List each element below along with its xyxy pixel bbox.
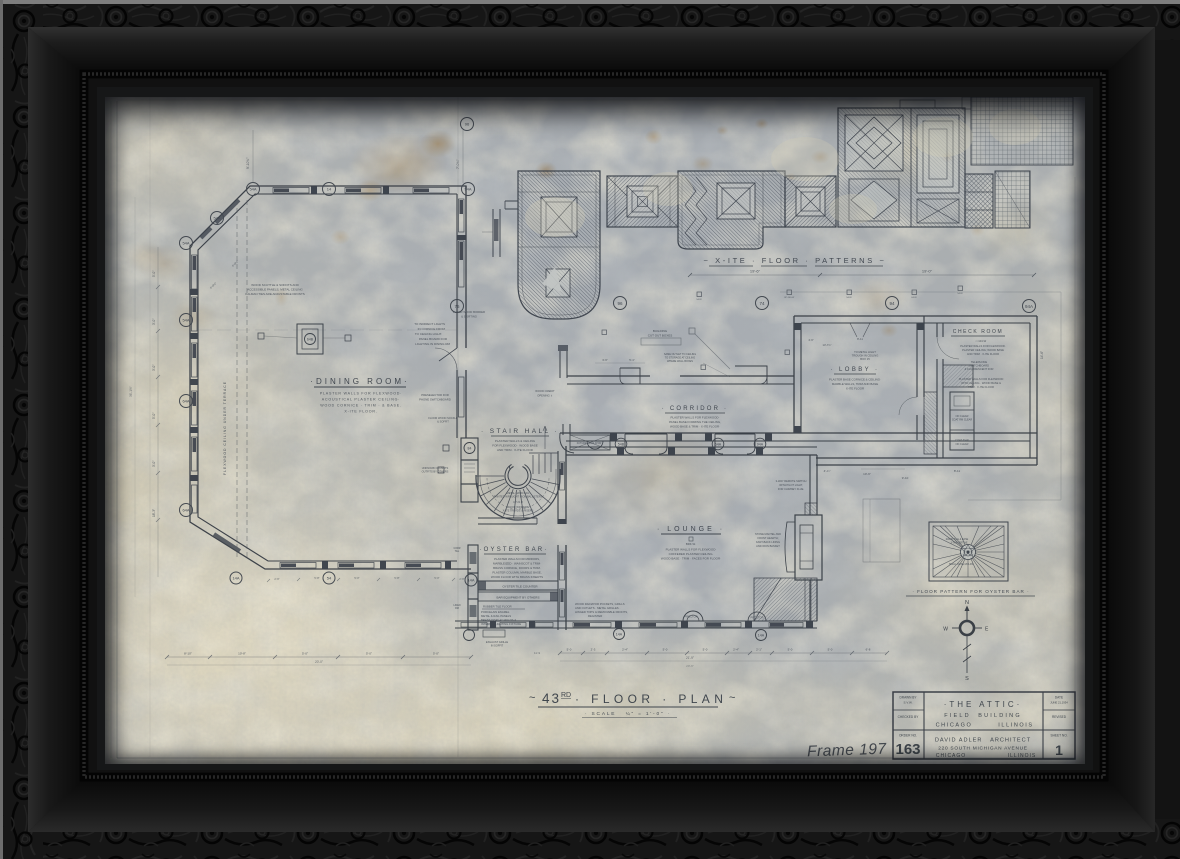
svg-text:· LOBBY ·: · LOBBY · xyxy=(831,367,880,373)
svg-text:5'-0: 5'-0 xyxy=(703,648,708,652)
svg-text:19'-0": 19'-0" xyxy=(922,269,933,274)
svg-text:14A: 14A xyxy=(232,576,239,581)
svg-text:· FLOOR · PLAN: · FLOOR · PLAN xyxy=(575,692,727,706)
svg-text:· STAIR HALL ·: · STAIR HALL · xyxy=(481,428,559,435)
svg-text:X-ITE FLOOR.: X-ITE FLOOR. xyxy=(344,410,377,414)
svg-text:TELEPHONE: TELEPHONE xyxy=(971,360,987,364)
svg-text:96: 96 xyxy=(465,122,470,127)
svg-text:Frame 197: Frame 197 xyxy=(807,741,888,761)
svg-text:& SOFFIT: & SOFFIT xyxy=(437,420,449,424)
svg-text:S.V.W.: S.V.W. xyxy=(904,701,913,705)
svg-text:14A: 14A xyxy=(758,634,765,638)
svg-text:CHECK ROOM: CHECK ROOM xyxy=(953,329,1003,335)
svg-text:3'-6": 3'-6" xyxy=(602,358,608,362)
svg-text:FLEXWOOD CEILING UNDER TERR: FLEXWOOD CEILING UNDER TERRACE xyxy=(223,381,227,475)
svg-text:64B: 64B xyxy=(307,338,314,342)
svg-text:NO CLEAR: NO CLEAR xyxy=(956,443,969,446)
svg-text:TEL: TEL xyxy=(455,550,460,553)
svg-text:14A: 14A xyxy=(616,633,623,637)
svg-text:54: 54 xyxy=(327,576,332,581)
svg-text:1: 1 xyxy=(1055,742,1063,758)
svg-text:14: 14 xyxy=(327,187,332,192)
svg-text:5'-8": 5'-8" xyxy=(394,576,399,580)
svg-text:13'-7¾": 13'-7¾" xyxy=(822,343,831,347)
svg-text:~: ~ xyxy=(529,692,535,704)
svg-text:PLASTER CEILING; WOOD BASE: PLASTER CEILING; WOOD BASE xyxy=(962,348,1004,352)
svg-text:64A: 64A xyxy=(715,443,722,447)
svg-text:PLASTER WALLS & CEILING: PLASTER WALLS & CEILING xyxy=(495,439,536,443)
svg-text:5'-1": 5'-1" xyxy=(629,358,635,362)
svg-text:4'-¾": 4'-¾" xyxy=(824,469,831,473)
svg-text:·OYSTER BAR·: ·OYSTER BAR· xyxy=(479,547,548,553)
svg-text:CHECKED BY: CHECKED BY xyxy=(898,715,920,719)
svg-text:4'-6": 4'-6" xyxy=(808,338,813,342)
svg-text:19'-6": 19'-6" xyxy=(750,269,761,274)
svg-text:3-WAY REMOTE SWITCH: 3-WAY REMOTE SWITCH xyxy=(776,479,807,483)
svg-text:ORDER NO.: ORDER NO. xyxy=(899,734,917,738)
svg-text:W: W xyxy=(943,627,948,633)
svg-text:WOOD WINDERS: WOOD WINDERS xyxy=(507,505,529,509)
svg-text:· LOUNGE ·: · LOUNGE · xyxy=(657,526,725,533)
svg-text:2'-4": 2'-4" xyxy=(733,648,739,652)
svg-text:7'-0¾": 7'-0¾" xyxy=(456,159,460,169)
svg-text:WOOD SCUTTLE & SOFFITS AND: WOOD SCUTTLE & SOFFITS AND xyxy=(251,283,299,287)
svg-text:FRONT HEARTH;: FRONT HEARTH; xyxy=(758,536,779,540)
svg-text:·THE ATTIC·: ·THE ATTIC· xyxy=(944,700,1023,709)
svg-text:FLOOR WOOD BORDER: FLOOR WOOD BORDER xyxy=(453,310,485,314)
svg-text:84: 84 xyxy=(468,447,472,451)
svg-text:KALMAN TIES ARE ADJUSTABLE FRO: KALMAN TIES ARE ADJUSTABLE FRONTS xyxy=(245,292,305,296)
svg-text:TO METAL LIGHT: TO METAL LIGHT xyxy=(854,350,876,354)
svg-text:& SKIRTING: & SKIRTING xyxy=(461,315,477,319)
svg-text:94A: 94A xyxy=(1025,304,1033,309)
svg-text:IN CORNICE FROM: IN CORNICE FROM xyxy=(418,327,446,331)
svg-text:& FLUORESCENT FOR: & FLUORESCENT FOR xyxy=(965,367,994,371)
svg-text:DATE: DATE xyxy=(1055,696,1063,700)
svg-text:BOX 15: BOX 15 xyxy=(860,357,870,361)
svg-text:CHICAGO: CHICAGO xyxy=(936,753,966,759)
svg-text:KANT-BACK LINING: KANT-BACK LINING xyxy=(756,540,780,544)
svg-text:TRIM · X-ITE FLOOR: TRIM · X-ITE FLOOR xyxy=(968,385,994,389)
svg-text:5'-8": 5'-8" xyxy=(314,576,319,580)
svg-text:FLOOR WOOD SOCKLE: FLOOR WOOD SOCKLE xyxy=(428,416,458,420)
svg-text:PLASTER BASE CORNICE & CEILING: PLASTER BASE CORNICE & CEILING· xyxy=(829,378,881,382)
svg-text:74: 74 xyxy=(759,301,765,306)
svg-text:PLASTER WALLS FOR FLEXWOOD·: PLASTER WALLS FOR FLEXWOOD· xyxy=(666,548,717,552)
svg-text:3'-0": 3'-0" xyxy=(152,319,156,325)
svg-text:PHONE SWITCHBOARD: PHONE SWITCHBOARD xyxy=(419,398,451,402)
svg-text:RM: RM xyxy=(455,607,459,610)
svg-text:WITH CEILING · WOOD BASE &: WITH CEILING · WOOD BASE & xyxy=(961,381,1001,385)
svg-text:· CORRIDOR ·: · CORRIDOR · xyxy=(662,406,728,412)
svg-text:6'-8: 6'-8 xyxy=(866,648,871,652)
svg-text:REGISTER: REGISTER xyxy=(588,614,602,618)
svg-text:COAT RM CLEAR: COAT RM CLEAR xyxy=(952,419,973,422)
svg-text:64A: 64A xyxy=(182,399,189,404)
svg-text:AND TRIM · X-ITE FLOOR: AND TRIM · X-ITE FLOOR xyxy=(497,448,534,452)
svg-text:SHEET NO.: SHEET NO. xyxy=(1050,734,1067,738)
svg-text:STONE MANTEL AND: STONE MANTEL AND xyxy=(755,532,781,536)
svg-text:DAVID ADLER ARCHITECT: DAVID ADLER ARCHITECT xyxy=(935,738,1031,744)
svg-text:X-ITE TREADS & RISERS: X-ITE TREADS & RISERS xyxy=(503,509,534,513)
svg-text:FIELD BUILDING: FIELD BUILDING xyxy=(944,713,1022,719)
svg-text:PLASTER WALLS FOR FLEXWOOD·: PLASTER WALLS FOR FLEXWOOD· xyxy=(671,416,720,420)
svg-text:ACCESSIBLE PANELS, METAL CEILI: ACCESSIBLE PANELS, METAL CEILING xyxy=(247,288,303,292)
svg-text:WOOD BASE & TRIM · X-ITE FLOOR: WOOD BASE & TRIM · X-ITE FLOOR· xyxy=(670,425,720,429)
svg-text:5'-0": 5'-0" xyxy=(366,652,372,656)
svg-text:COAT 60-W: COAT 60-W xyxy=(955,439,969,442)
svg-text:3-TRAVERTINE: 3-TRAVERTINE xyxy=(950,542,967,545)
svg-text:WHERE WALL BOXES: WHERE WALL BOXES xyxy=(667,360,693,363)
svg-text:TO CEILING LIGHT.: TO CEILING LIGHT. xyxy=(415,332,442,336)
svg-text:220 SOUTH MICHIGAN AVENUE: 220 SOUTH MICHIGAN AVENUE xyxy=(938,746,1027,752)
svg-text:163: 163 xyxy=(895,741,920,758)
svg-text:MARBLE WALLS, TRIM AND BASE: MARBLE WALLS, TRIM AND BASE xyxy=(832,382,878,386)
svg-text:5'-0: 5'-0 xyxy=(567,648,572,652)
svg-text:8'-11: 8'-11 xyxy=(954,469,961,473)
svg-text:FOR FLEXWOOD · WOOD BASE: FOR FLEXWOOD · WOOD BASE xyxy=(492,444,538,448)
svg-text:PLASTER COLUMN, MARBLE BASE,: PLASTER COLUMN, MARBLE BASE, xyxy=(492,571,542,575)
svg-text:CUT OUT BOXES: CUT OUT BOXES xyxy=(648,334,672,338)
svg-text:PAINTED WROUGHT IRON BALUSTERS: PAINTED WROUGHT IRON BALUSTERS xyxy=(494,495,543,499)
svg-text:OUTFITS BY OTHERS: OUTFITS BY OTHERS xyxy=(422,470,449,474)
svg-text:PLASTER WALLS FOR MIRRORS,: PLASTER WALLS FOR MIRRORS, xyxy=(494,557,540,561)
svg-text:UP 21 R: UP 21 R xyxy=(513,500,523,504)
svg-text:ILLINOIS: ILLINOIS xyxy=(998,723,1033,729)
svg-text:CHICAGO: CHICAGO xyxy=(936,723,973,729)
svg-text:36'-1½": 36'-1½" xyxy=(129,386,133,397)
svg-text:4'-0½": 4'-0½" xyxy=(209,281,217,289)
svg-text:TROUGH IN CEILING: TROUGH IN CEILING xyxy=(852,354,879,358)
svg-text:BAR EQUIPMENT BY OTHERS: BAR EQUIPMENT BY OTHERS xyxy=(497,596,540,600)
svg-text:8'-11: 8'-11 xyxy=(857,337,863,341)
svg-text:FUTURE ESCALATOR: FUTURE ESCALATOR xyxy=(577,442,602,445)
svg-text:54A: 54A xyxy=(249,187,256,192)
svg-text:2'-6": 2'-6" xyxy=(459,577,464,581)
svg-text:14'-6": 14'-6" xyxy=(1040,351,1044,359)
svg-text:PLASTER WALLS FOR FLEXWOOD: PLASTER WALLS FOR FLEXWOOD xyxy=(959,377,1004,381)
svg-text:11'-9: 11'-9 xyxy=(534,651,541,655)
svg-text:54A: 54A xyxy=(464,187,471,192)
svg-text:54A: 54A xyxy=(182,318,189,323)
svg-text:PANEL BOARD FOR: PANEL BOARD FOR xyxy=(419,337,448,341)
svg-text:N: N xyxy=(965,600,969,606)
svg-text:BRASS CORNICE, DOORS & TRIM·: BRASS CORNICE, DOORS & TRIM· xyxy=(493,566,541,570)
svg-text:5'-0: 5'-0 xyxy=(828,648,833,652)
svg-text:54A: 54A xyxy=(182,241,189,246)
svg-text:· FLOOR PATTERN FOR OYSTER: · FLOOR PATTERN FOR OYSTER BAR · xyxy=(912,589,1029,594)
svg-text:REVISED: REVISED xyxy=(1052,715,1067,719)
svg-text:WOOD CREDIT: WOOD CREDIT xyxy=(535,389,555,393)
svg-text:IN SOFFIT: IN SOFFIT xyxy=(491,644,504,648)
svg-text:3'-0": 3'-0" xyxy=(152,461,156,467)
svg-text:SWITCHBOARD: SWITCHBOARD xyxy=(969,364,989,368)
svg-text:OYSTER TILE COUNTER: OYSTER TILE COUNTER xyxy=(502,585,538,589)
svg-text:94: 94 xyxy=(889,301,895,306)
svg-text:54B: 54B xyxy=(618,443,625,447)
svg-text:18'-3": 18'-3" xyxy=(152,509,156,517)
svg-text:JUNE 21,1934: JUNE 21,1934 xyxy=(1050,701,1068,705)
svg-text:20'-0": 20'-0" xyxy=(315,660,323,664)
svg-text:PLASTER WALLS FOR FLEXWOOD·: PLASTER WALLS FOR FLEXWOOD· xyxy=(960,344,1006,348)
svg-text:2'-6": 2'-6" xyxy=(274,577,279,581)
svg-text:4'-0½": 4'-0½" xyxy=(231,259,239,267)
svg-text:UNKNOWN CLOSETS: UNKNOWN CLOSETS xyxy=(422,466,449,470)
svg-text:X-ITE FLOOR: X-ITE FLOOR xyxy=(846,387,864,391)
svg-text:5'-0": 5'-0" xyxy=(302,652,308,656)
svg-text:9'-10¾": 9'-10¾" xyxy=(246,157,250,169)
svg-text:5'-0: 5'-0 xyxy=(663,648,668,652)
svg-text:PLASTER WALLS FOR FLEXWOOD·: PLASTER WALLS FOR FLEXWOOD· xyxy=(320,392,402,396)
svg-text:FOR CHIMNEY FLUE.: FOR CHIMNEY FLUE. xyxy=(778,487,804,491)
svg-text:10'-8": 10'-8" xyxy=(238,652,246,656)
svg-text:BRK·W·: BRK·W· xyxy=(686,542,696,546)
svg-text:64-W: 64-W xyxy=(911,297,917,299)
svg-text:94A: 94A xyxy=(757,443,764,447)
svg-text:96: 96 xyxy=(617,301,623,306)
svg-text:20'-6": 20'-6" xyxy=(686,664,694,668)
svg-text:5'-0": 5'-0" xyxy=(354,576,359,580)
svg-text:64A: 64A xyxy=(182,508,189,513)
svg-text:E: E xyxy=(985,627,989,633)
svg-text:MARBLEIZED · WAINSCOT & TRIM·: MARBLEIZED · WAINSCOT & TRIM· xyxy=(493,562,541,566)
svg-text:43: 43 xyxy=(542,691,561,706)
svg-text:TO INDIRECT LIGHTS: TO INDIRECT LIGHTS xyxy=(414,322,445,326)
svg-text:5'-0": 5'-0" xyxy=(152,271,156,277)
svg-text:2'-1": 2'-1" xyxy=(756,648,762,652)
svg-text:PRESELECTOR FOR: PRESELECTOR FOR xyxy=(421,393,448,397)
svg-text:AND IRON BASKET: AND IRON BASKET xyxy=(756,544,780,548)
svg-text:8'-10": 8'-10" xyxy=(184,652,192,656)
svg-text:~: ~ xyxy=(729,692,735,704)
svg-text:EXHAUST GRILLE: EXHAUST GRILLE xyxy=(486,640,508,644)
svg-text:5'-0: 5'-0 xyxy=(788,648,793,652)
svg-text:METAL HAND RAIL: METAL HAND RAIL xyxy=(507,491,530,495)
svg-text:ILLINOIS: ILLINOIS xyxy=(1008,753,1037,759)
svg-text:WOOD FLOOR WITH BRASS INSERTS: WOOD FLOOR WITH BRASS INSERTS xyxy=(491,575,543,579)
svg-text:DRAWN BY: DRAWN BY xyxy=(899,696,917,700)
svg-text:RD: RD xyxy=(561,692,571,699)
svg-text:5'-0": 5'-0" xyxy=(152,413,156,419)
svg-text:OPENING ↳: OPENING ↳ xyxy=(537,394,553,398)
svg-text:RUBBER TILE FLOOR: RUBBER TILE FLOOR xyxy=(483,605,512,609)
svg-text:14A: 14A xyxy=(467,578,474,583)
svg-text:PROCTOR: PROCTOR xyxy=(685,615,698,619)
svg-text:9'-10: 9'-10 xyxy=(902,476,909,480)
svg-text:5'-0": 5'-0" xyxy=(434,576,439,580)
svg-text:WITH PILOT LIGHT,: WITH PILOT LIGHT, xyxy=(779,483,803,487)
svg-text:54-W: 54-W xyxy=(696,299,702,301)
svg-text:AND TRIM · X-ITE FLOOR: AND TRIM · X-ITE FLOOR xyxy=(967,352,999,356)
svg-text:OP-100-W: OP-100-W xyxy=(784,297,795,299)
svg-text:5'-0": 5'-0" xyxy=(433,652,439,656)
svg-text:· SCALE ¼" = 1'-0" ·: · SCALE ¼" = 1'-0" · xyxy=(585,711,671,717)
svg-text:PANEL BASE FORMING THE CEILING: PANEL BASE FORMING THE CEILING, xyxy=(669,420,721,424)
svg-text:3'-0": 3'-0" xyxy=(152,365,156,371)
svg-text:54A: 54A xyxy=(213,216,220,221)
svg-text:BUILDING: BUILDING xyxy=(653,329,668,333)
svg-text:WOOD CORNICE · TRIM · & BASE.: WOOD CORNICE · TRIM · & BASE. xyxy=(320,404,401,408)
svg-text:PROCTOR: PROCTOR xyxy=(751,616,764,620)
svg-text:21'-9": 21'-9" xyxy=(686,656,694,660)
svg-text:LIGHTING IN DINING RM: LIGHTING IN DINING RM xyxy=(415,342,450,346)
svg-text:54-W: 54-W xyxy=(957,293,963,295)
svg-text:2'-3: 2'-3 xyxy=(591,648,596,652)
svg-text:2'-4": 2'-4" xyxy=(622,648,628,652)
svg-text:COFFERED PLASTER CEILING·: COFFERED PLASTER CEILING· xyxy=(669,552,714,556)
svg-text:□ 104-W: □ 104-W xyxy=(976,339,987,343)
svg-text:54-W: 54-W xyxy=(846,297,852,299)
svg-text:10'-6": 10'-6" xyxy=(863,472,871,476)
svg-text:ACOUSTICAL PLASTER CEILING·: ACOUSTICAL PLASTER CEILING· xyxy=(322,398,400,402)
svg-text:·DINING ROOM·: ·DINING ROOM· xyxy=(310,377,409,386)
svg-text:SMALL ROSE MOLDS: SMALL ROSE MOLDS xyxy=(949,563,974,566)
svg-text:WOOD BASE · TRIM · FACES FOR F: WOOD BASE · TRIM · FACES FOR FLOOR· xyxy=(661,557,721,561)
svg-text:S: S xyxy=(965,676,969,682)
svg-text:~ X-ITE · FLOOR · PATTERNS ~: ~ X-ITE · FLOOR · PATTERNS ~ xyxy=(704,256,887,265)
